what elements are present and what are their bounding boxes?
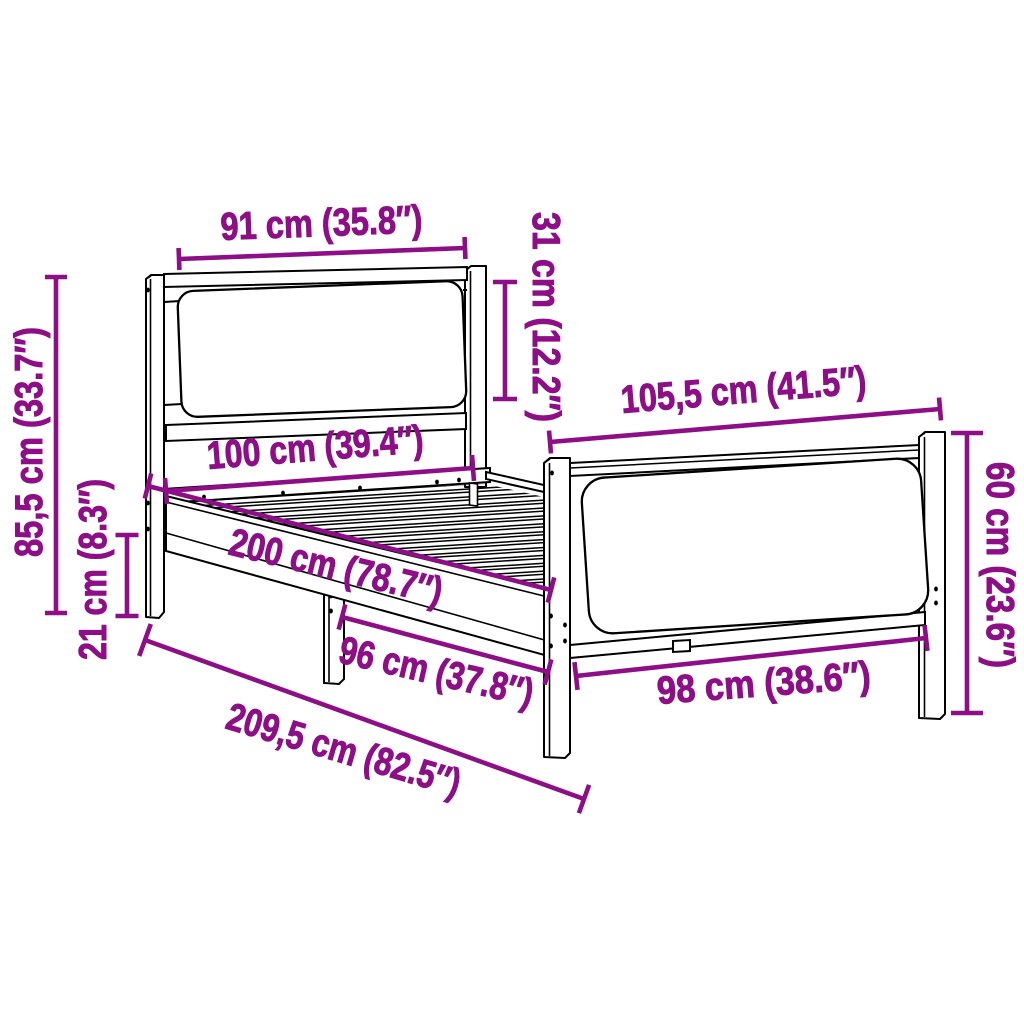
svg-text:21 cm (8.3″): 21 cm (8.3″) xyxy=(72,479,115,660)
svg-text:60 cm (23.6″): 60 cm (23.6″) xyxy=(978,462,1021,668)
svg-text:31 cm (12.2″): 31 cm (12.2″) xyxy=(524,212,567,422)
svg-text:91 cm (35.8″): 91 cm (35.8″) xyxy=(220,198,424,249)
svg-text:85,5 cm (33.7″): 85,5 cm (33.7″) xyxy=(8,327,51,557)
svg-text:105,5 cm (41.5″): 105,5 cm (41.5″) xyxy=(619,359,868,422)
